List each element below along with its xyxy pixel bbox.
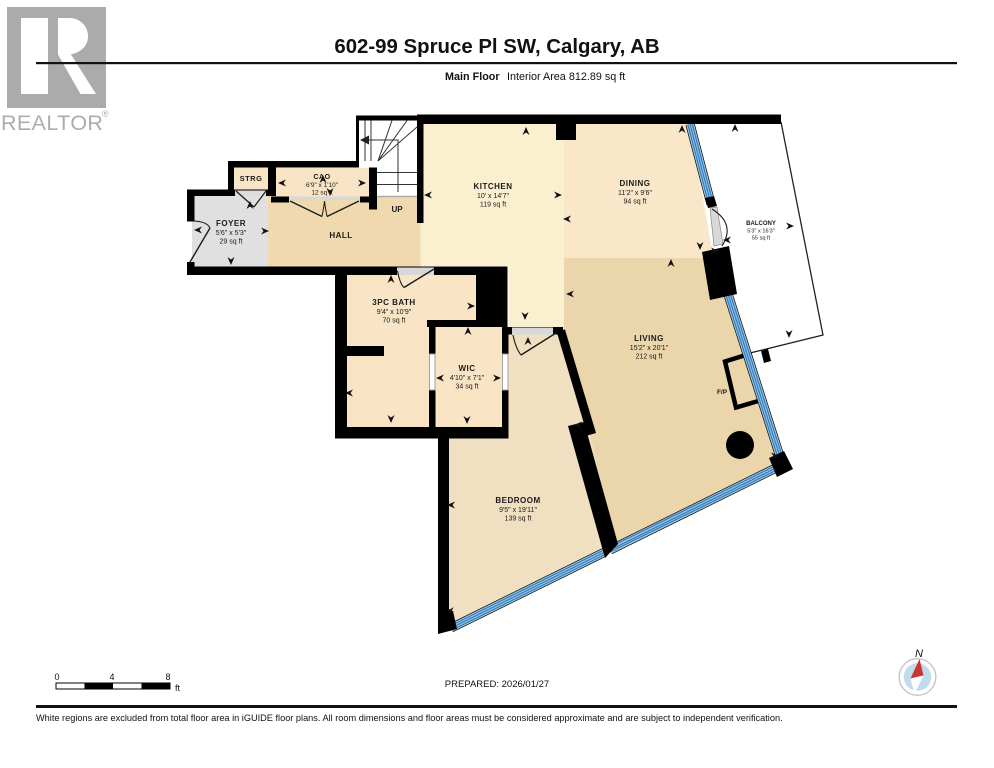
svg-text:REALTOR: REALTOR <box>1 111 103 135</box>
svg-text:12 sq ft: 12 sq ft <box>311 190 333 197</box>
svg-text:LIVING: LIVING <box>634 334 664 343</box>
svg-text:KITCHEN: KITCHEN <box>473 182 512 191</box>
svg-text:FOYER: FOYER <box>216 219 246 228</box>
svg-text:0: 0 <box>54 672 59 682</box>
svg-text:4: 4 <box>109 672 114 682</box>
svg-text:®: ® <box>102 109 109 119</box>
svg-text:HALL: HALL <box>329 231 352 240</box>
svg-text:F/P: F/P <box>717 389 728 396</box>
svg-text:70 sq ft: 70 sq ft <box>383 318 406 325</box>
svg-text:15'2" x 20'1": 15'2" x 20'1" <box>630 345 669 352</box>
svg-text:6'9" x 1'10": 6'9" x 1'10" <box>306 182 339 189</box>
svg-text:ft: ft <box>175 683 181 693</box>
svg-text:29 sq ft: 29 sq ft <box>220 239 243 246</box>
svg-text:602-99 Spruce Pl SW, Calgary,: 602-99 Spruce Pl SW, Calgary, AB <box>334 36 659 58</box>
svg-text:WIC: WIC <box>458 364 475 373</box>
svg-text:9'5" x 19'11": 9'5" x 19'11" <box>499 507 537 514</box>
svg-text:212 sq ft: 212 sq ft <box>636 354 663 361</box>
svg-text:4'10" x 7'1": 4'10" x 7'1" <box>450 375 485 382</box>
svg-text:119 sq ft: 119 sq ft <box>480 202 506 209</box>
svg-text:BEDROOM: BEDROOM <box>495 496 540 505</box>
svg-text:139 sq ft: 139 sq ft <box>505 516 532 523</box>
svg-text:11'2" x 9'6": 11'2" x 9'6" <box>618 190 652 197</box>
svg-text:94 sq ft: 94 sq ft <box>624 199 647 206</box>
svg-text:CAO: CAO <box>313 174 330 181</box>
svg-text:55 sq ft: 55 sq ft <box>752 236 771 242</box>
svg-text:Main Floor: Main Floor <box>445 71 500 83</box>
svg-text:5'6" x 5'3": 5'6" x 5'3" <box>216 230 247 237</box>
svg-text:10' x 14'7": 10' x 14'7" <box>477 193 510 200</box>
svg-text:UP: UP <box>391 205 403 214</box>
svg-text:9'4" x 10'9": 9'4" x 10'9" <box>377 309 412 316</box>
svg-text:White regions are excluded fro: White regions are excluded from total fl… <box>36 713 783 723</box>
svg-text:STRG: STRG <box>240 174 263 183</box>
svg-text:34 sq ft: 34 sq ft <box>456 384 479 391</box>
svg-text:BALCONY: BALCONY <box>746 221 776 227</box>
svg-text:Interior Area 812.89 sq ft: Interior Area 812.89 sq ft <box>507 71 625 83</box>
svg-text:DINING: DINING <box>620 179 651 188</box>
svg-text:3PC BATH: 3PC BATH <box>372 298 415 307</box>
svg-text:PREPARED: 2026/01/27: PREPARED: 2026/01/27 <box>445 679 549 690</box>
svg-text:5'3" x 16'3": 5'3" x 16'3" <box>747 229 775 235</box>
svg-text:8: 8 <box>165 672 170 682</box>
